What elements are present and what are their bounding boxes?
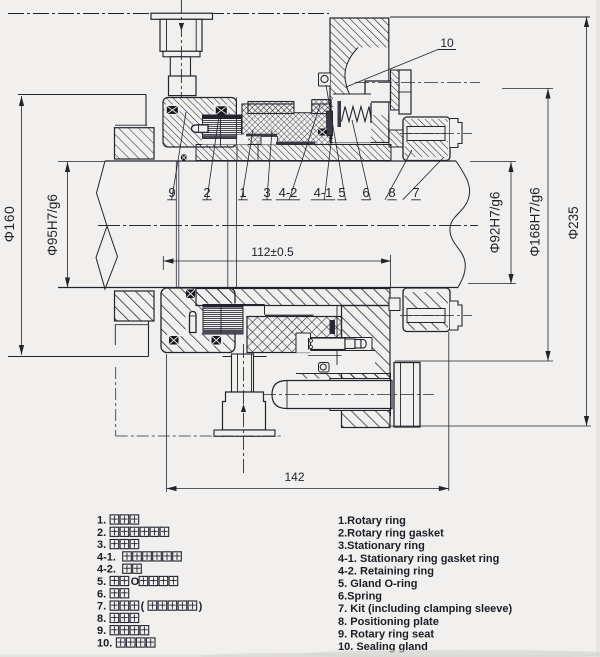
svg-text:6.Spring: 6.Spring — [338, 591, 382, 603]
svg-text:3.: 3. — [97, 539, 106, 551]
svg-text:5. Gland O-ring: 5. Gland O-ring — [338, 578, 417, 590]
svg-text:10: 10 — [440, 36, 454, 50]
svg-text:4-1. Stationary ring gasket ri: 4-1. Stationary ring gasket ring — [338, 553, 499, 565]
svg-text:4-1.: 4-1. — [97, 551, 116, 563]
svg-text:8.: 8. — [97, 613, 106, 625]
svg-text:9.: 9. — [97, 625, 106, 637]
svg-text:Φ160: Φ160 — [1, 206, 17, 243]
svg-text:5.: 5. — [97, 576, 106, 588]
svg-text:2.: 2. — [97, 527, 106, 539]
svg-text:O: O — [131, 576, 140, 588]
svg-text:2.Rotary ring gasket: 2.Rotary ring gasket — [338, 528, 444, 540]
svg-text:142: 142 — [284, 470, 304, 484]
svg-text:Φ92H7/g6: Φ92H7/g6 — [488, 192, 503, 254]
svg-text:1.: 1. — [97, 515, 106, 527]
svg-text:112±0.5: 112±0.5 — [251, 245, 294, 259]
svg-text:10.: 10. — [97, 638, 112, 650]
svg-text:): ) — [199, 601, 203, 613]
svg-text:4-1: 4-1 — [314, 185, 333, 200]
svg-text:1.Rotary ring: 1.Rotary ring — [338, 515, 406, 527]
svg-text:4-2: 4-2 — [279, 185, 298, 200]
svg-text:4-2. Retaining ring: 4-2. Retaining ring — [338, 565, 434, 577]
svg-text:8. Positioning plate: 8. Positioning plate — [338, 616, 439, 628]
svg-text:Φ95H7/g6: Φ95H7/g6 — [45, 194, 60, 256]
svg-text:(: ( — [141, 601, 145, 613]
svg-text:7: 7 — [412, 185, 419, 200]
svg-text:7. Kit (including clamping sle: 7. Kit (including clamping sleeve) — [338, 603, 513, 615]
svg-text:6.: 6. — [97, 588, 106, 600]
svg-text:Φ235: Φ235 — [566, 206, 581, 239]
svg-text:9. Rotary ring seat: 9. Rotary ring seat — [338, 628, 434, 640]
svg-text:3.Stationary ring: 3.Stationary ring — [338, 540, 425, 552]
svg-text:Φ168H7/g6: Φ168H7/g6 — [528, 187, 543, 256]
svg-text:4-2.: 4-2. — [97, 564, 116, 576]
svg-text:7.: 7. — [97, 601, 106, 613]
